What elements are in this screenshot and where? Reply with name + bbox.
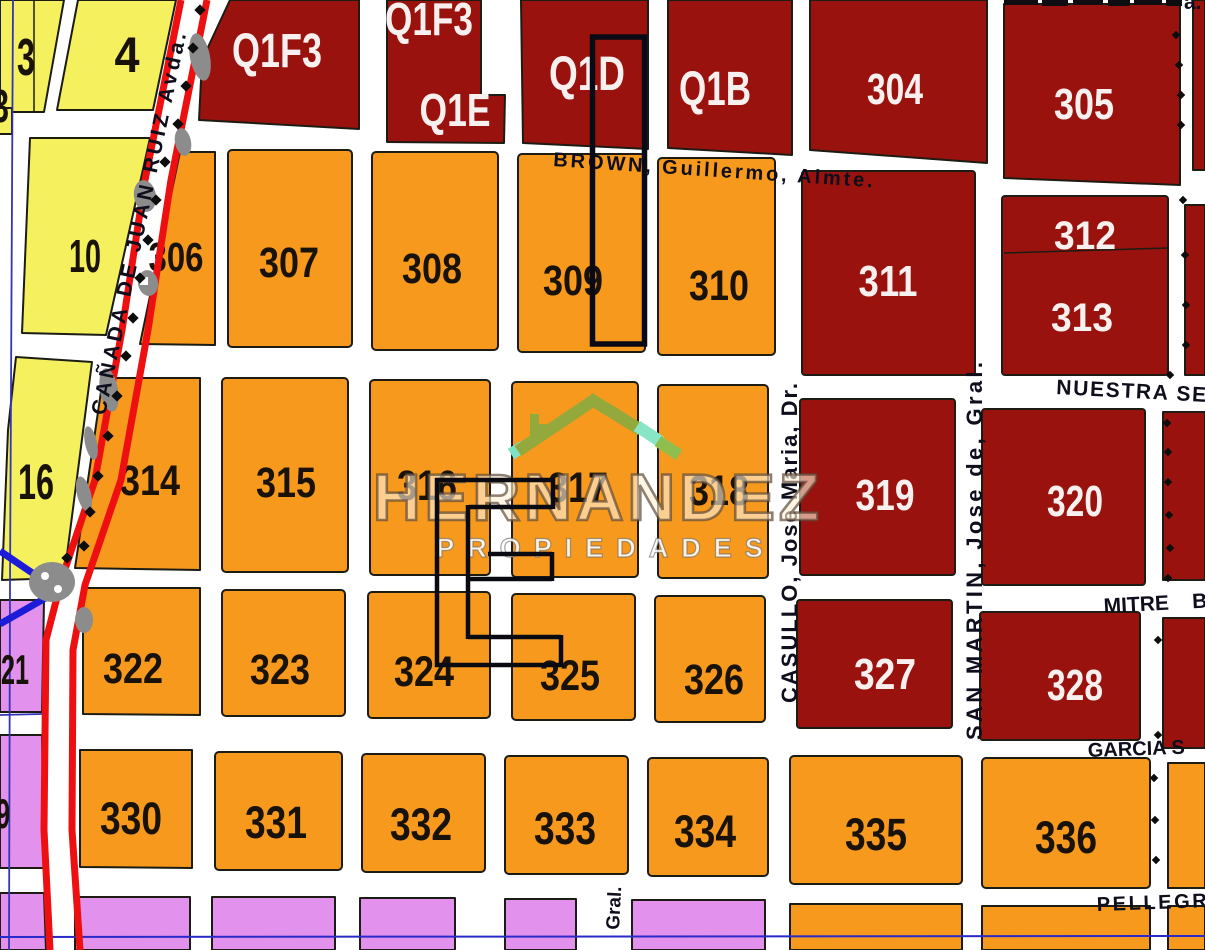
svg-text:328: 328 (1047, 661, 1103, 710)
svg-text:310: 310 (689, 262, 749, 310)
svg-text:4: 4 (115, 27, 140, 83)
svg-text:PELLEGR: PELLEGR (1096, 890, 1205, 916)
svg-text:10: 10 (69, 230, 101, 282)
svg-text:335: 335 (845, 809, 907, 860)
svg-text:325: 325 (540, 652, 600, 700)
svg-text:327: 327 (854, 650, 916, 699)
svg-text:19: 19 (0, 790, 10, 837)
svg-text:326: 326 (684, 656, 744, 704)
svg-text:PROPIEDADES: PROPIEDADES (436, 533, 776, 563)
svg-text:Q1D: Q1D (549, 48, 625, 101)
svg-text:Gral.: Gral. (603, 886, 626, 930)
svg-text:333: 333 (534, 803, 596, 854)
svg-text:313: 313 (1051, 296, 1113, 340)
svg-text:322: 322 (103, 645, 163, 693)
svg-text:CASULLO, Jose Maria, Dr.: CASULLO, Jose Maria, Dr. (777, 383, 802, 703)
svg-text:3: 3 (17, 29, 35, 87)
svg-text:13: 13 (0, 80, 9, 132)
svg-text:336: 336 (1035, 812, 1097, 863)
svg-text:a.: a. (1184, 0, 1202, 14)
svg-text:307: 307 (259, 239, 319, 287)
svg-text:308: 308 (402, 245, 462, 293)
svg-text:315: 315 (256, 459, 316, 507)
svg-text:Q1F3: Q1F3 (232, 25, 322, 78)
svg-text:311: 311 (859, 257, 918, 306)
svg-text:320: 320 (1047, 477, 1103, 526)
svg-text:Q1F3: Q1F3 (385, 0, 473, 45)
svg-text:21: 21 (1, 646, 29, 693)
svg-text:304: 304 (867, 65, 923, 114)
svg-text:Q1B: Q1B (679, 63, 751, 116)
svg-text:Q1E: Q1E (420, 84, 491, 136)
svg-text:312: 312 (1054, 214, 1116, 258)
svg-text:314: 314 (120, 457, 180, 505)
svg-text:323: 323 (250, 646, 310, 694)
svg-text:330: 330 (100, 793, 162, 844)
svg-text:332: 332 (390, 799, 452, 850)
svg-text:319: 319 (856, 471, 915, 520)
svg-text:324: 324 (394, 648, 454, 696)
svg-text:GARCIA S: GARCIA S (1087, 737, 1185, 762)
svg-text:HERNANDEZ: HERNANDEZ (373, 460, 823, 534)
svg-text:331: 331 (245, 797, 307, 848)
svg-text:16: 16 (18, 454, 54, 510)
svg-text:305: 305 (1054, 80, 1114, 129)
svg-text:334: 334 (674, 806, 736, 857)
